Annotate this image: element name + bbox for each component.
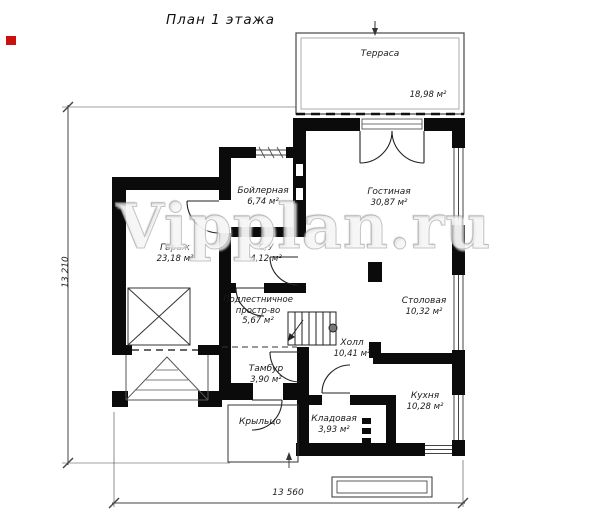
dimension-left: 13 210 <box>61 256 71 288</box>
floor-plan: План 1 этажа <box>0 0 600 524</box>
room-label-terrace: Терраса <box>361 49 399 60</box>
floor-plan-drawing <box>0 0 600 524</box>
room-label-hall: Холл 10,41 м² <box>334 338 371 360</box>
room-label-understairs: Подлестничное простр-во 5,67 м² <box>223 295 293 327</box>
garage-skylight <box>128 288 190 345</box>
room-label-living: Гостиная 30,87 м² <box>367 187 410 209</box>
room-label-tambour: Тамбур 3,90 м² <box>249 364 283 386</box>
room-area-terrace: 18,98 м² <box>410 90 447 101</box>
room-label-pantry: Кладовая 3,93 м² <box>311 414 357 436</box>
page-title: План 1 этажа <box>166 12 275 28</box>
staircase <box>288 312 337 345</box>
porch-outline <box>228 405 298 468</box>
room-label-wc: С/У 4,12 м² <box>250 243 281 265</box>
room-label-dining: Столовая 10,32 м² <box>402 296 447 318</box>
room-label-porch: Крыльцо <box>239 417 281 428</box>
dimension-bottom: 13 560 <box>272 488 304 498</box>
room-label-garage: Гараж 23,18 м² <box>157 243 194 265</box>
red-marker <box>6 36 16 45</box>
driveway-ramp <box>126 355 208 400</box>
room-label-boiler: Бойлерная 6,74 м² <box>237 186 288 208</box>
room-label-kitchen: Кухня 10,28 м² <box>407 391 444 413</box>
entry-step <box>332 477 432 497</box>
